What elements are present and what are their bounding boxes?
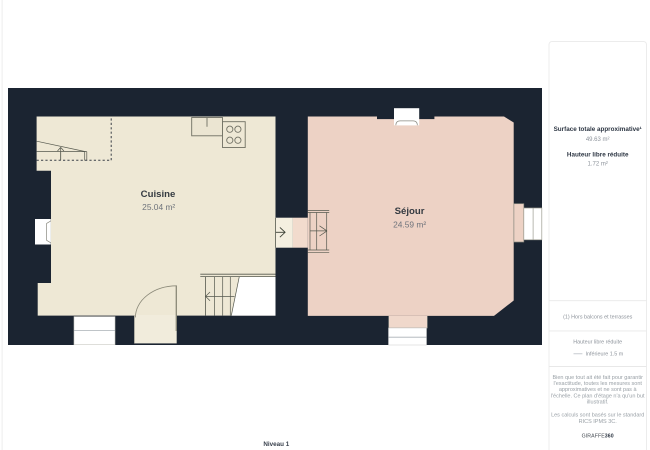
svg-text:Hauteur libre réduite: Hauteur libre réduite <box>567 152 629 159</box>
svg-text:Bien que tout ait été fait pou: Bien que tout ait été fait pour garantir <box>552 375 643 381</box>
svg-text:approximatives et ne sont pas: approximatives et ne sont pas à <box>559 387 638 393</box>
svg-text:Hauteur libre réduite: Hauteur libre réduite <box>573 339 622 345</box>
svg-text:25.04 m²: 25.04 m² <box>142 202 175 212</box>
svg-text:1.72 m²: 1.72 m² <box>588 162 608 168</box>
svg-text:l'échelle. Ce plan d'étage n'a: l'échelle. Ce plan d'étage n'a qu'un but <box>551 393 645 399</box>
svg-text:Niveau 1: Niveau 1 <box>263 441 289 448</box>
svg-text:RICS IPMS 3C.: RICS IPMS 3C. <box>579 419 618 425</box>
svg-text:(1) Hors balcons et terrasses: (1) Hors balcons et terrasses <box>563 314 633 320</box>
svg-text:illustratif.: illustratif. <box>587 400 609 406</box>
svg-text:Les calculs sont basés sur le: Les calculs sont basés sur le standard <box>551 412 644 418</box>
svg-text:GIRAFFE360: GIRAFFE360 <box>582 433 614 439</box>
svg-text:Surface totale approximative¹: Surface totale approximative¹ <box>554 126 642 133</box>
svg-text:l'exactitude, toutes les mesur: l'exactitude, toutes les mesures sont <box>553 381 642 387</box>
svg-text:24.59 m²: 24.59 m² <box>393 219 426 229</box>
svg-text:Inférieure 1.5 m: Inférieure 1.5 m <box>586 352 624 358</box>
svg-text:Cuisine: Cuisine <box>141 189 176 200</box>
svg-text:49.63 m²: 49.63 m² <box>586 137 610 143</box>
svg-text:Séjour: Séjour <box>395 206 425 217</box>
